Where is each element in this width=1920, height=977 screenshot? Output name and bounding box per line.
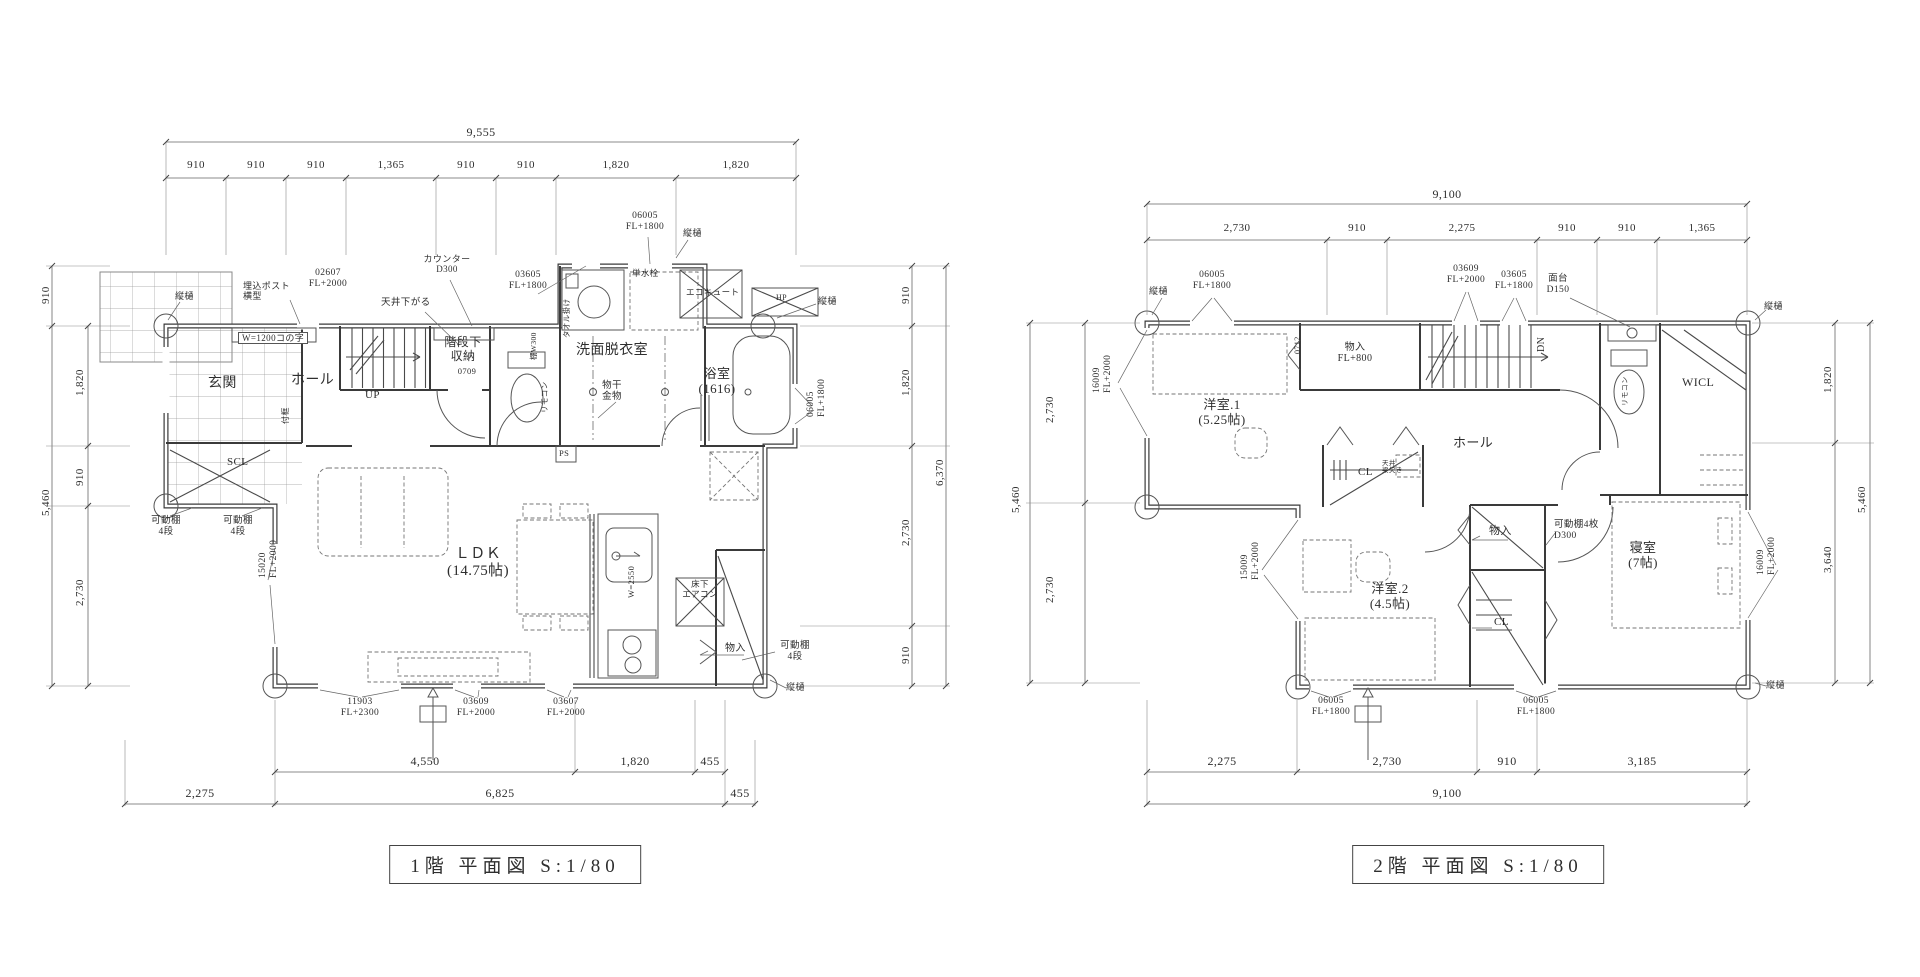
dim-seg: 3,640 [1822, 546, 1834, 573]
shelf-label: 可動棚 4段 [223, 516, 253, 537]
room-label: 寝室 (7帖) [1628, 541, 1658, 570]
dim-seg: 1,365 [378, 159, 405, 171]
dim-seg: 910 [307, 159, 325, 171]
dim-seg: 910 [1497, 755, 1516, 769]
window-code: 06005 FL+1800 [1193, 270, 1231, 291]
equipment-label: 床下 エアコン [682, 580, 718, 599]
window-code: 16009 FL+2000 [1756, 537, 1777, 575]
equipment-label: エコキュート [686, 288, 739, 298]
dim-seg: 1,820 [74, 369, 86, 396]
dim-overall-width: 9,555 [467, 126, 496, 140]
floor1-geometry [100, 237, 818, 760]
dim-seg: 910 [517, 159, 535, 171]
window-code: 06005 FL+1800 [1312, 696, 1350, 717]
window-code: 16009 FL+2000 [1092, 355, 1113, 393]
label: PS [559, 449, 569, 459]
room-label: 物入 FL+800 [1338, 342, 1373, 365]
dim-seg: 910 [187, 159, 205, 171]
room-label: SCL [227, 456, 248, 468]
dim-seg: 1,820 [723, 159, 750, 171]
drawing-sheet: { "sheet": {"background": "#ffffff", "li… [0, 0, 1920, 977]
room-label: 洋室.1 (5.25帖) [1198, 398, 1245, 427]
label: リモコン [1622, 376, 1630, 406]
dimension-lines [46, 139, 1874, 807]
dim-overall-height: 6,370 [934, 459, 946, 486]
floor2-geometry [1118, 292, 1778, 760]
shelf-label: W=1200コの字 [238, 332, 308, 344]
window-code: 06005 FL+1800 [806, 379, 827, 417]
dim-seg: 2,275 [186, 787, 215, 801]
dim-seg: 910 [74, 468, 86, 486]
room-label: ホール [291, 373, 334, 389]
window-code: 03607 FL+2000 [547, 697, 585, 718]
label: タオル掛け [563, 299, 571, 339]
dim-seg: 3,185 [1628, 755, 1657, 769]
dim-seg: 2,730 [1373, 755, 1402, 769]
dim-seg: 2,730 [900, 519, 912, 546]
dim-seg: 910 [1348, 222, 1366, 234]
dim-seg: 1,820 [1822, 366, 1834, 393]
window-code: 06005 FL+1800 [1517, 696, 1555, 717]
window-code: 15009 FL+2000 [1240, 542, 1261, 580]
label: W=2550 [627, 566, 637, 598]
downspout-label: 縦樋 [683, 228, 702, 238]
dim-seg: 910 [900, 646, 912, 664]
room-label: 玄関 [208, 376, 237, 392]
dim-seg: 4,550 [411, 755, 440, 769]
dim-seg: 455 [730, 787, 749, 801]
room-label: 物入 [725, 643, 746, 654]
dim-seg: 6,825 [486, 787, 515, 801]
label: 天井 梁欠き [1382, 460, 1403, 475]
room-label: 階段下 収納 [444, 336, 481, 363]
equipment-label: HP [776, 293, 787, 302]
dim-seg: 910 [900, 286, 912, 304]
shelf-label: 可動棚4枚 D300 [1554, 520, 1599, 541]
dim-seg: 2,730 [1224, 222, 1251, 234]
label: 付框 [281, 407, 290, 424]
shelf-label: 可動棚 4段 [151, 516, 181, 537]
floor1-title: 1階 平面図 S:1/80 [389, 845, 641, 884]
dim-seg: 1,365 [1689, 222, 1716, 234]
dim-seg: 2,275 [1208, 755, 1237, 769]
room-label: 浴室 (1616) [698, 367, 735, 396]
dim-seg: 1,820 [900, 369, 912, 396]
room-label: CL [1358, 466, 1373, 478]
room-label: ホール [1453, 436, 1493, 451]
dim-seg: 1,820 [621, 755, 650, 769]
window-code: 11903 FL+2300 [341, 697, 379, 718]
door-code: 0709 [458, 367, 477, 377]
dim-seg: 2,275 [1449, 222, 1476, 234]
window-code: 03605 FL+1800 [509, 270, 547, 291]
window-code: 06005 FL+1800 [626, 211, 664, 232]
stair-label: DN [1536, 337, 1547, 352]
downspout-label: 縦樋 [786, 682, 805, 692]
window-code: 03605 FL+1800 [1495, 270, 1533, 291]
floor2-title: 2階 平面図 S:1/80 [1352, 845, 1604, 884]
dim-seg: 2,730 [74, 579, 86, 606]
label: リモコン [541, 381, 549, 413]
downspout-label: 縦樋 [175, 291, 194, 301]
downspout-label: 縦樋 [1766, 680, 1785, 690]
fixture-label: 面台 D150 [1547, 274, 1570, 295]
dim-seg: 910 [247, 159, 265, 171]
dim-overall-height: 5,460 [1856, 486, 1868, 513]
dim-seg: 910 [1618, 222, 1636, 234]
dim-overall-width: 9,100 [1433, 787, 1462, 801]
window-code: 03609 FL+2000 [457, 697, 495, 718]
post-label: 埋込ポスト 横型 [243, 281, 290, 301]
ceiling-label: 天井下がる [381, 298, 431, 309]
label: 棚W300 [530, 332, 538, 360]
door-code: 0712 [1293, 336, 1302, 354]
downspout-label: 縦樋 [818, 296, 837, 306]
room-label: 洗面脱衣室 [576, 343, 648, 359]
dim-seg: 910 [1558, 222, 1576, 234]
dim-overall-height: 5,460 [1010, 486, 1022, 513]
dim-seg: 910 [40, 286, 52, 304]
dim-seg: 910 [457, 159, 475, 171]
dim-seg: 2,730 [1044, 396, 1056, 423]
shelf-label: 可動棚 4段 [780, 641, 810, 662]
room-label: 物入 [1489, 525, 1512, 537]
dim-seg: 455 [700, 755, 719, 769]
downspout-label: 縦樋 [1149, 286, 1168, 296]
window-code: 02607 FL+2000 [309, 268, 347, 289]
fixture-label: 単水栓 [632, 269, 659, 279]
dim-overall-width: 9,100 [1433, 188, 1462, 202]
window-code: 03609 FL+2000 [1447, 264, 1485, 285]
dim-overall-height: 5,460 [40, 489, 52, 516]
fixture-label: 物干 金物 [602, 381, 622, 402]
room-label: 洋室.2 (4.5帖) [1370, 582, 1410, 611]
room-label: CL [1494, 616, 1509, 628]
room-label: ＬＤＫ (14.75帖) [447, 546, 509, 580]
stair-label: UP [365, 389, 380, 401]
downspout-label: 縦樋 [1764, 301, 1783, 311]
dim-seg: 1,820 [603, 159, 630, 171]
counter-label: カウンター D300 [423, 254, 470, 274]
window-code: 15020 FL+2000 [258, 540, 279, 578]
floorplan-canvas [0, 0, 1920, 977]
dim-seg: 2,730 [1044, 576, 1056, 603]
room-label: WICL [1682, 376, 1714, 390]
